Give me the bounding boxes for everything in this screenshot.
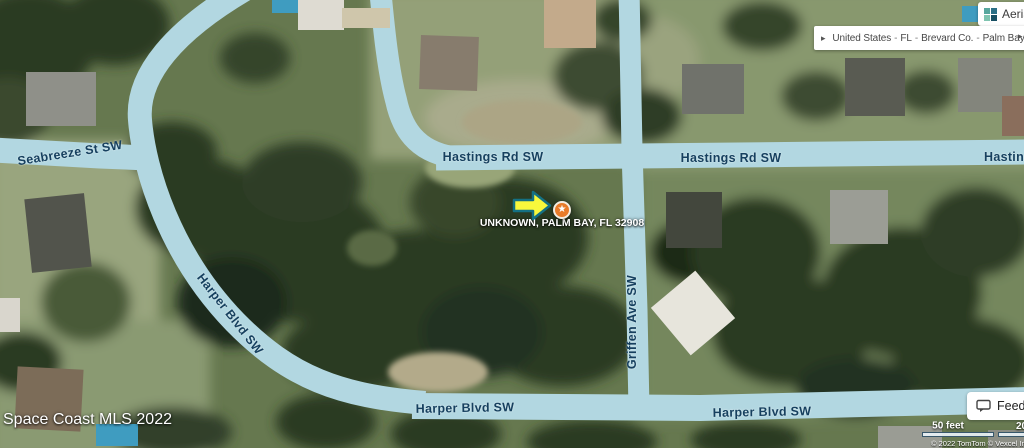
- scale-bar-imperial: [922, 432, 994, 437]
- breadcrumb-next-icon[interactable]: ▸: [1018, 31, 1023, 42]
- breadcrumb-item-county[interactable]: Brevard Co.: [921, 33, 973, 44]
- breadcrumb-item-country[interactable]: United States: [832, 33, 891, 44]
- speech-bubble-icon: [976, 399, 991, 413]
- feedback-button[interactable]: Feedback: [967, 392, 1024, 420]
- scale-imperial-label: 50 feet: [932, 421, 964, 432]
- breadcrumb-separator: -: [976, 33, 979, 44]
- road-label-griffen: Griffen Ave SW: [625, 275, 639, 369]
- aerial-tiles-icon: [984, 8, 997, 21]
- map-copyright: © 2022 TomTom © Vexcel Imaging: [931, 439, 1024, 448]
- road-label-hastings-west: Hastings Rd SW: [443, 150, 544, 164]
- road-label-hastings-mid: Hastings Rd SW: [681, 151, 782, 165]
- breadcrumb-separator: -: [894, 33, 897, 44]
- property-star-marker[interactable]: ★: [553, 201, 571, 219]
- breadcrumb-prev-icon[interactable]: ▸: [821, 33, 825, 44]
- road-label-harper-south-west: Harper Blvd SW: [416, 400, 515, 416]
- mls-attribution: Space Coast MLS 2022: [3, 411, 172, 429]
- road-label-hastings-east: Hastings Rd SW: [984, 150, 1024, 164]
- breadcrumb: ▸ United States - FL - Brevard Co. - Pal…: [814, 26, 1024, 50]
- map-viewport[interactable]: Seabreeze St SW Hastings Rd SW Hastings …: [0, 0, 1024, 448]
- road-label-harper-south-east: Harper Blvd SW: [713, 404, 812, 420]
- star-icon: ★: [558, 205, 567, 215]
- map-type-label: Aerial: [1002, 7, 1024, 21]
- breadcrumb-item-state[interactable]: FL: [900, 33, 911, 44]
- map-type-button[interactable]: Aerial: [978, 2, 1024, 26]
- pointer-arrow-icon: [512, 190, 552, 221]
- scale-bar-metric: [998, 432, 1024, 437]
- breadcrumb-separator: -: [915, 33, 918, 44]
- feedback-label: Feedback: [997, 399, 1024, 413]
- scale-metric-label: 20 m: [1016, 421, 1024, 432]
